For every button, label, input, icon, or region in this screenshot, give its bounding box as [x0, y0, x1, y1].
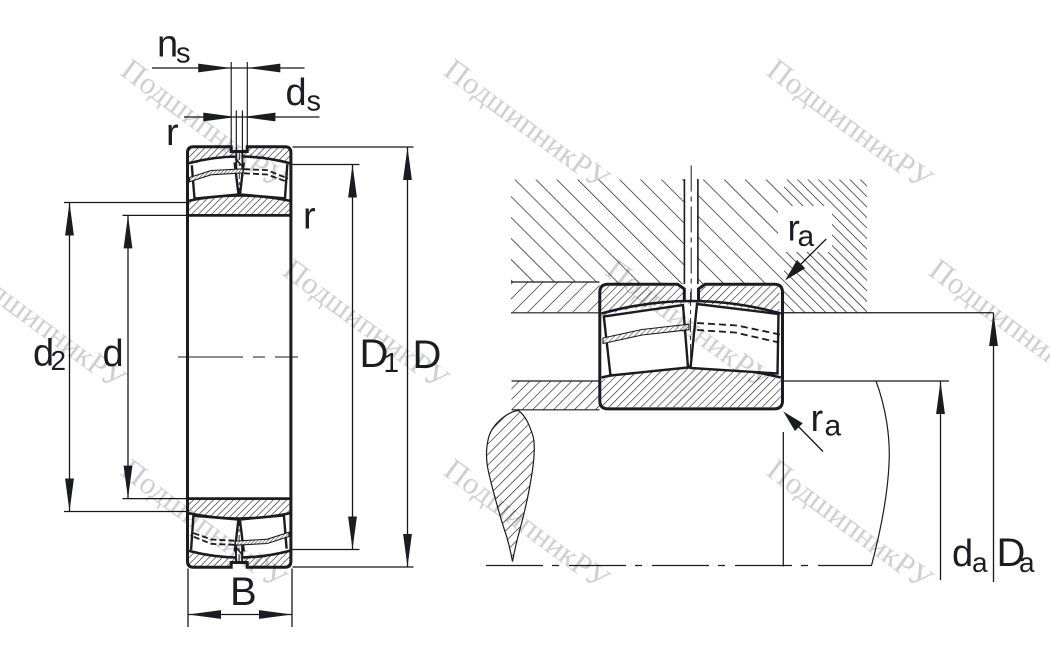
svg-text:a: a: [1019, 547, 1035, 578]
svg-text:a: a: [798, 220, 815, 253]
svg-text:n: n: [157, 24, 178, 66]
svg-text:a: a: [972, 547, 988, 578]
svg-text:r: r: [811, 398, 824, 440]
svg-text:d: d: [286, 72, 307, 114]
svg-text:s: s: [176, 38, 191, 70]
svg-text:r: r: [303, 196, 316, 238]
svg-text:a: a: [825, 410, 842, 443]
svg-text:d: d: [952, 533, 973, 575]
svg-text:s: s: [307, 86, 322, 118]
